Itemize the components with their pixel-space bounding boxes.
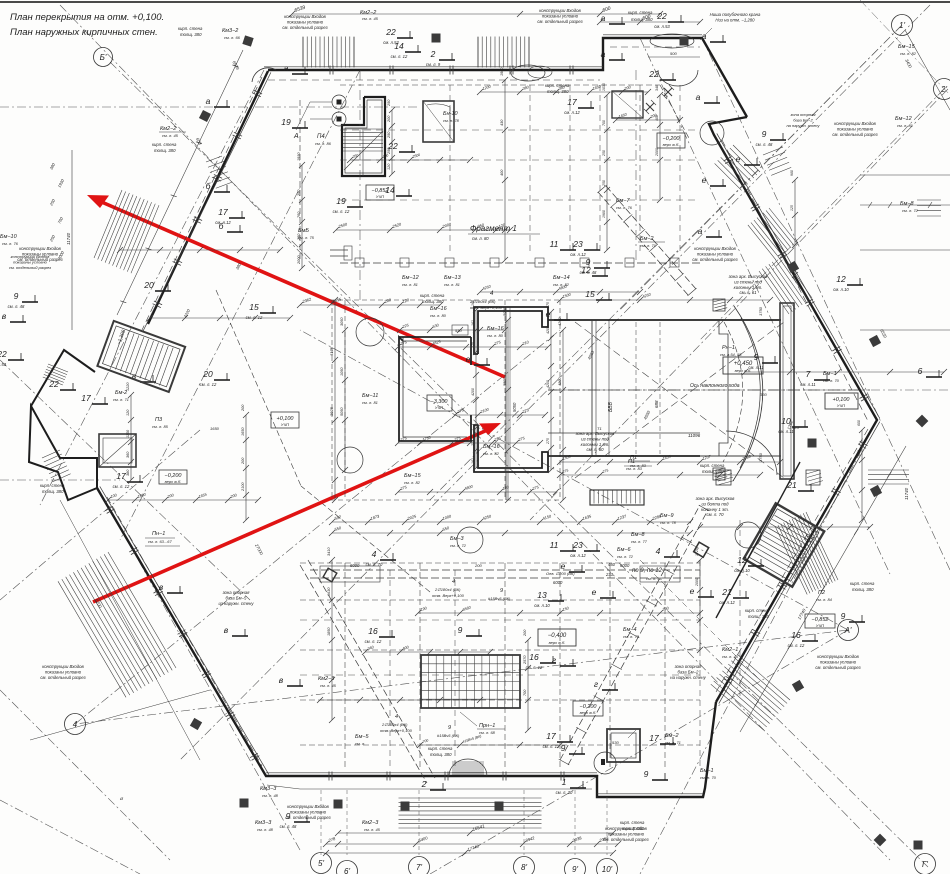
svg-text:233: 233 [605, 572, 614, 577]
svg-text:1750: 1750 [758, 452, 763, 462]
svg-text:17: 17 [567, 97, 577, 107]
svg-text:Бм−2: Бм−2 [665, 733, 679, 739]
svg-text:2000: 2000 [297, 255, 301, 265]
svg-text:Км2−2: Км2−2 [160, 126, 176, 132]
svg-text:е: е [466, 354, 471, 364]
svg-text:16: 16 [529, 652, 539, 662]
svg-text:6000: 6000 [350, 563, 360, 568]
svg-text:160: 160 [471, 300, 475, 306]
svg-text:22: 22 [48, 379, 59, 389]
svg-text:е: е [702, 175, 707, 185]
svg-text:кирп. стена: кирп. стена [700, 463, 725, 468]
svg-text:Г': Г' [922, 860, 928, 869]
svg-text:е: е [592, 587, 597, 597]
svg-text:9': 9' [572, 865, 578, 874]
svg-text:360: 360 [126, 451, 130, 458]
svg-text:630: 630 [857, 450, 861, 456]
svg-text:см. л. 30: см. л. 30 [556, 790, 573, 795]
svg-text:20: 20 [202, 369, 213, 379]
svg-text:конструкции Входов: конструкции Входов [694, 246, 736, 251]
svg-text:база Бм−2: база Бм−2 [678, 669, 699, 674]
svg-text:А': А' [844, 626, 852, 635]
svg-text:см. л. 77: см. л. 77 [631, 539, 648, 544]
svg-text:е: е [546, 309, 551, 319]
svg-text:6000: 6000 [553, 580, 563, 585]
svg-text:показаны условно: показаны условно [697, 251, 734, 256]
svg-text:в: в [279, 675, 284, 685]
svg-text:17: 17 [81, 393, 91, 403]
svg-text:3050: 3050 [340, 317, 344, 326]
svg-text:см. л. 72: см. л. 72 [902, 208, 919, 213]
svg-text:колонны 1 эт.: колонны 1 эт. [734, 285, 763, 290]
svg-text:Бм−10: Бм−10 [0, 234, 18, 240]
svg-text:275: 275 [546, 302, 550, 309]
svg-text:см. л. 48: см. л. 48 [8, 304, 25, 309]
svg-text:см. л. 12: см. л. 12 [333, 209, 350, 214]
svg-text:см. л. 48: см. л. 48 [580, 270, 597, 275]
svg-text:6175: 6175 [329, 346, 334, 356]
svg-text:1220: 1220 [126, 382, 130, 391]
svg-text:см. л. 48: см. л. 48 [262, 793, 279, 798]
svg-text:кирп. стена: кирп. стена [428, 746, 453, 751]
svg-text:кирп. стена: кирп. стена [40, 483, 65, 488]
svg-text:УЧП: УЧП [435, 405, 443, 410]
svg-text:см. отдельный разрез: см. отдельный разрез [282, 25, 327, 30]
svg-text:125: 125 [790, 205, 794, 211]
svg-text:9: 9 [500, 588, 503, 594]
svg-text:7': 7' [416, 863, 422, 872]
svg-text:Бм−16: Бм−16 [487, 326, 505, 332]
svg-text:Бн-10: Бн-10 [443, 111, 458, 117]
svg-text:л.53: л.53 [0, 362, 7, 367]
svg-text:см. л. 70: см. л. 70 [700, 775, 717, 780]
svg-text:см. л. 45: см. л. 45 [162, 133, 179, 138]
svg-text:а: а [284, 63, 289, 73]
svg-text:15: 15 [585, 289, 595, 299]
svg-text:кирп. стена: кирп. стена [152, 142, 177, 147]
svg-text:250: 250 [387, 131, 391, 139]
svg-text:кирп. стена: кирп. стена [850, 581, 875, 586]
svg-text:1030: 1030 [602, 83, 606, 91]
svg-text:2570: 2570 [523, 655, 527, 665]
svg-text:см. л.12: см. л.12 [564, 110, 580, 115]
svg-text:9: 9 [561, 743, 566, 753]
svg-text:см. л. 48: см. л. 48 [646, 576, 663, 581]
svg-text:см. л. 45: см. л. 45 [320, 683, 337, 688]
svg-text:План наружных кирпичных сте: План наружных кирпичных стен. [10, 27, 158, 38]
svg-text:3925: 3925 [329, 406, 334, 416]
svg-text:г: г [552, 655, 556, 665]
svg-text:см. отдельный разрез: см. отдельный разрез [832, 132, 877, 137]
svg-text:из стены под: из стены под [581, 436, 609, 441]
svg-text:16: 16 [368, 626, 378, 636]
svg-text:П4: П4 [317, 134, 325, 140]
svg-text:Бм−15: Бм−15 [898, 44, 916, 50]
svg-text:кирп. стена: кирп. стена [620, 820, 645, 825]
svg-text:10': 10' [602, 865, 613, 874]
svg-text:Бм−1: Бм−1 [700, 768, 714, 774]
svg-text:688: 688 [654, 400, 659, 408]
svg-text:#15Вч5 (ВК): #15Вч5 (ВК) [437, 733, 460, 738]
svg-text:8': 8' [521, 863, 527, 872]
svg-text:Низ на отм. −1,280: Низ на отм. −1,280 [715, 17, 755, 22]
svg-text:показаны условно: показаны условно [542, 13, 579, 18]
svg-text:г: г [594, 679, 598, 689]
svg-text:530: 530 [455, 328, 462, 333]
svg-text:показаны условно: показаны условно [837, 126, 874, 131]
svg-text:см. л. 82: см. л. 82 [404, 480, 421, 485]
svg-text:толщ. 380: толщ. 380 [748, 614, 770, 619]
svg-text:План перекрытия на отм. +0: План перекрытия на отм. +0,100. [10, 12, 164, 23]
svg-text:см. л. 80: см. л. 80 [472, 236, 489, 241]
svg-text:1650: 1650 [210, 426, 220, 431]
svg-text:Км2−1: Км2−1 [722, 647, 738, 653]
svg-text:15: 15 [249, 302, 259, 312]
svg-text:зона арх. Выпусков: зона арх. Выпусков [695, 496, 736, 501]
svg-text:зона опорная: зона опорная [222, 590, 251, 595]
svg-text:200: 200 [241, 404, 245, 412]
svg-text:кирп. стена: кирп. стена [420, 293, 445, 298]
svg-text:19: 19 [281, 117, 291, 127]
svg-text:кирп. стена: кирп. стена [745, 608, 769, 613]
svg-text:конструкции Входов: конструкции Входов [817, 654, 859, 659]
svg-text:см. л.11: см. л.11 [778, 429, 793, 434]
svg-text:9: 9 [458, 625, 463, 635]
svg-text:275: 275 [471, 440, 475, 447]
svg-text:см. л. 61: см. л. 61 [739, 290, 757, 295]
svg-text:см. л. 70: см. л. 70 [706, 512, 724, 517]
svg-text:из стены под: из стены под [734, 279, 762, 284]
svg-text:см. л. 71: см. л. 71 [640, 243, 656, 248]
svg-text:17: 17 [546, 731, 556, 741]
svg-text:4: 4 [452, 579, 455, 585]
svg-text:2100: 2100 [241, 482, 245, 492]
svg-text:толщ. 380: толщ. 380 [180, 32, 202, 37]
svg-text:см. л. 48: см. л. 48 [257, 827, 274, 832]
svg-text:см. л. 76: см. л. 76 [2, 241, 19, 246]
svg-text:см. отдельный разрез: см. отдельный разрез [40, 675, 85, 680]
svg-text:120: 120 [126, 409, 130, 416]
svg-text:Пн−1: Пн−1 [152, 531, 165, 537]
svg-text:см. л. 12: см. л. 12 [365, 639, 382, 644]
svg-text:БмБ: БмБ [298, 228, 309, 234]
svg-text:УЧП: УЧП [376, 194, 384, 199]
svg-text:700: 700 [523, 689, 527, 696]
svg-text:19: 19 [336, 196, 346, 206]
svg-text:Бм−16: Бм−16 [483, 444, 501, 450]
svg-text:см. л. 9: см. л. 9 [426, 62, 441, 67]
svg-text:20: 20 [143, 280, 154, 290]
svg-text:2: 2 [421, 779, 427, 789]
svg-text:200: 200 [241, 457, 245, 465]
svg-text:см. л.10: см. л.10 [534, 603, 550, 608]
svg-text:6000: 6000 [620, 563, 630, 568]
svg-text:530: 530 [612, 740, 619, 745]
svg-text:толщ. 380: толщ. 380 [852, 587, 874, 592]
svg-text:5050: 5050 [512, 402, 517, 412]
svg-text:1980: 1980 [500, 67, 504, 76]
svg-text:400: 400 [655, 115, 659, 121]
svg-text:см. л. 78: см. л. 78 [660, 520, 677, 525]
svg-text:конструкции Входов: конструкции Входов [834, 121, 876, 126]
svg-text:Бм−15: Бм−15 [404, 473, 422, 479]
svg-text:колонну 1 эт.: колонну 1 эт. [701, 507, 729, 512]
svg-text:10: 10 [781, 416, 791, 426]
svg-text:см. л. 45: см. л. 45 [722, 654, 739, 659]
svg-text:12: 12 [836, 274, 846, 284]
svg-text:162: 162 [471, 320, 475, 326]
svg-text:5050: 5050 [502, 306, 507, 316]
svg-text:е: е [561, 561, 566, 571]
svg-text:1930: 1930 [297, 152, 301, 161]
svg-text:4: 4 [395, 714, 398, 720]
svg-text:700: 700 [602, 120, 606, 126]
svg-text:430: 430 [500, 119, 504, 126]
svg-text:толщ. 380: толщ. 380 [42, 489, 64, 494]
svg-text:250: 250 [387, 99, 391, 107]
svg-text:23: 23 [572, 540, 583, 550]
svg-text:11: 11 [550, 239, 559, 249]
svg-text:см. л. 81: см. л. 81 [897, 123, 913, 128]
svg-text:в: в [224, 625, 229, 635]
svg-text:см. отдельный разрез: см. отдельный разрез [815, 665, 860, 670]
svg-text:см. л. 45: см. л. 45 [364, 827, 381, 832]
svg-text:см. л. 68: см. л. 68 [479, 730, 496, 735]
svg-text:4: 4 [372, 549, 377, 559]
svg-text:верх ж.б.: верх ж.б. [165, 479, 182, 484]
svg-text:380: 380 [126, 469, 130, 476]
svg-text:см. л. 82: см. л. 82 [900, 51, 917, 56]
svg-text:9: 9 [644, 769, 649, 779]
svg-text:а: а [206, 96, 211, 106]
svg-text:показаны условно: показаны условно [820, 659, 857, 664]
svg-text:толщ. 380: толщ. 380 [430, 752, 452, 757]
svg-text:Рн−1: Рн−1 [722, 345, 735, 351]
svg-text:см. л. 71: см. л. 71 [113, 397, 129, 402]
svg-text:верх ж.б.: верх ж.б. [549, 640, 566, 645]
svg-text:275: 275 [546, 438, 550, 445]
svg-text:9: 9 [586, 257, 591, 267]
svg-text:2080: 2080 [695, 578, 699, 587]
svg-text:зона опорная: зона опорная [789, 112, 816, 117]
svg-text:Бм−6: Бм−6 [617, 547, 632, 553]
svg-text:см. л.54, 55: см. л.54, 55 [720, 352, 742, 357]
svg-text:из наружн. стену: из наружн. стену [218, 601, 254, 606]
svg-text:см. л.53: см. л.53 [383, 40, 399, 45]
svg-text:1850: 1850 [327, 627, 331, 636]
svg-text:см. л.12: см. л.12 [570, 553, 586, 558]
svg-text:УЧП: УЧП [837, 403, 845, 408]
svg-text:см. л. 60: см. л. 60 [586, 447, 604, 452]
svg-text:см. л.11: см. л.11 [748, 365, 763, 370]
svg-text:9: 9 [14, 291, 19, 301]
svg-text:конструкции Входов: конструкции Входов [19, 246, 61, 251]
svg-text:см. л. 86: см. л. 86 [315, 141, 332, 146]
svg-text:11740: 11740 [904, 487, 909, 500]
svg-text:кирп. стена: кирп. стена [178, 26, 203, 31]
svg-text:9: 9 [448, 725, 451, 731]
svg-text:е: е [690, 586, 695, 596]
svg-text:250: 250 [602, 150, 606, 157]
svg-text:база Бм−2: база Бм−2 [793, 117, 813, 122]
svg-text:Км3−3: Км3−3 [260, 786, 277, 792]
svg-text:2: 2 [430, 49, 436, 59]
svg-text:конструкции Входов: конструкции Входов [287, 804, 329, 809]
svg-text:Бм−11: Бм−11 [362, 393, 378, 399]
svg-text:7: 7 [806, 369, 811, 379]
svg-text:Км2−3: Км2−3 [362, 820, 379, 826]
svg-text:3410: 3410 [327, 547, 331, 556]
svg-text:е: е [736, 154, 741, 164]
svg-text:см. отдельный разрез: см. отдельный разрез [603, 837, 648, 842]
svg-text:показаны условно: показаны условно [608, 831, 645, 836]
svg-text:200: 200 [523, 629, 527, 637]
svg-text:см. л.: см. л. [355, 741, 365, 746]
svg-text:см. л.53: см. л.53 [654, 24, 670, 29]
svg-text:6: 6 [918, 366, 923, 376]
svg-text:см. л. 81: см. л. 81 [402, 282, 418, 287]
svg-text:толщ. 380: толщ. 380 [622, 826, 644, 831]
svg-text:а: а [601, 49, 606, 59]
svg-text:на наружн. стену: на наружн. стену [786, 123, 820, 128]
svg-text:200: 200 [474, 563, 482, 568]
svg-text:верх ж.б.: верх ж.б. [580, 710, 597, 715]
svg-text:см. л. 84: см. л. 84 [816, 597, 833, 602]
svg-text:250: 250 [602, 180, 606, 187]
svg-text:показаны условно: показаны условно [13, 259, 48, 264]
svg-text:показаны условно: показаны условно [45, 669, 82, 674]
svg-text:17: 17 [116, 471, 126, 481]
svg-text:9: 9 [754, 352, 759, 362]
svg-text:из болта под: из болта под [702, 501, 730, 506]
svg-text:конструкции Входов: конструкции Входов [42, 664, 84, 669]
svg-text:1': 1' [899, 21, 905, 30]
svg-text:−0,400: −0,400 [548, 633, 567, 639]
svg-text:9: 9 [762, 129, 767, 139]
svg-text:Бм−12: Бм−12 [895, 116, 912, 122]
svg-text:П3: П3 [155, 417, 163, 423]
svg-text:22: 22 [0, 349, 7, 359]
svg-text:2080: 2080 [655, 148, 659, 157]
svg-text:см. л. 12: см. л. 12 [113, 484, 130, 489]
svg-text:Прн−1: Прн−1 [479, 723, 495, 729]
svg-text:см. л. 80: см. л. 80 [487, 333, 504, 338]
svg-text:показаны условно: показаны условно [287, 19, 324, 24]
svg-text:400: 400 [500, 169, 504, 176]
svg-text:в: в [2, 311, 7, 321]
svg-text:Бм−4: Бм−4 [623, 627, 637, 633]
svg-text:см. л. 45: см. л. 45 [362, 16, 379, 21]
svg-text:Ниша полубочного крана: Ниша полубочного крана [710, 12, 761, 17]
svg-text:Бм−2: Бм−2 [640, 236, 654, 242]
svg-text:760: 760 [297, 211, 301, 218]
svg-text:Ось наклонного хода: Ось наклонного хода [690, 383, 740, 389]
svg-text:УЧП: УЧП [281, 422, 289, 427]
svg-text:см. л. 81: см. л. 81 [362, 400, 378, 405]
svg-text:500: 500 [670, 51, 677, 56]
svg-text:П1: П1 [630, 455, 637, 461]
svg-text:Км3−3: Км3−3 [255, 820, 272, 826]
svg-text:конструкции Входов: конструкции Входов [284, 14, 326, 19]
svg-text:конструкции Входов: конструкции Входов [11, 254, 50, 259]
svg-text:1980: 1980 [602, 210, 606, 218]
svg-text:1750: 1750 [758, 306, 763, 316]
svg-text:Км3−2: Км3−2 [222, 28, 238, 34]
svg-text:11096: 11096 [688, 433, 701, 438]
svg-text:4206: 4206 [546, 326, 550, 334]
svg-text:см. л. 66: см. л. 66 [224, 35, 241, 40]
svg-text:см. л. 12: см. л. 12 [200, 382, 217, 387]
svg-text:верх ж.б.: верх ж.б. [663, 142, 680, 147]
svg-text:11: 11 [550, 540, 559, 550]
svg-text:17: 17 [649, 733, 659, 743]
svg-text:см. л. 63...67: см. л. 63...67 [148, 539, 172, 544]
svg-text:см. л.10: см. л.10 [833, 287, 849, 292]
svg-text:см. л. 12: см. л. 12 [391, 54, 408, 59]
svg-text:Бм−13: Бм−13 [444, 275, 462, 281]
svg-text:см. л. 80: см. л. 80 [430, 313, 447, 318]
svg-text:УЧП: УЧП [816, 623, 824, 628]
svg-text:см. отдельный разрез: см. отдельный разрез [285, 815, 330, 820]
svg-text:см. л. 76: см. л. 76 [616, 205, 633, 210]
svg-text:1050: 1050 [340, 367, 344, 376]
svg-text:1720: 1720 [695, 548, 699, 556]
svg-text:330: 330 [760, 392, 767, 397]
svg-text:см. отдельный разрез: см. отдельный разрез [692, 257, 737, 262]
svg-text:600: 600 [857, 420, 861, 426]
svg-text:4200: 4200 [546, 380, 550, 388]
svg-text:отм. Верх+0,100: отм. Верх+0,100 [432, 593, 465, 598]
svg-text:4200: 4200 [558, 377, 562, 386]
svg-text:980: 980 [790, 170, 794, 176]
svg-text:см. л. 12: см. л. 12 [246, 315, 263, 320]
svg-text:см. л.12: см. л.12 [719, 600, 735, 605]
svg-text:конструкции Входов: конструкции Входов [539, 8, 581, 13]
svg-text:200: 200 [387, 115, 391, 123]
svg-text:Бм−9: Бм−9 [660, 513, 674, 519]
svg-text:162: 162 [471, 458, 475, 464]
svg-text:по 9, по 12: по 9, по 12 [632, 568, 663, 574]
svg-text:см. л. 83: см. л. 83 [630, 463, 647, 468]
svg-text:250: 250 [297, 189, 301, 197]
svg-text:6': 6' [344, 867, 350, 874]
svg-text:5500: 5500 [502, 376, 507, 386]
svg-text:толщ. 380: толщ. 380 [154, 148, 176, 153]
svg-text:1650: 1650 [241, 427, 245, 436]
svg-text:5': 5' [318, 859, 324, 868]
svg-text:120: 120 [387, 163, 391, 170]
svg-text:а: а [601, 13, 606, 23]
svg-text:11740: 11740 [66, 232, 71, 245]
svg-text:см. л. 78: см. л. 78 [443, 118, 460, 123]
svg-text:Бм−5: Бм−5 [355, 734, 370, 740]
svg-text:а: а [696, 92, 701, 102]
svg-text:см. л. 48: см. л. 48 [756, 142, 773, 147]
svg-text:БВВ: БВВ [608, 401, 614, 412]
svg-text:А: А [293, 133, 299, 140]
svg-text:Бм−3: Бм−3 [900, 201, 915, 207]
svg-text:в: в [159, 582, 164, 592]
svg-text:зона опорная: зона опорная [674, 664, 703, 669]
svg-text:толщ. 380: толщ. 380 [422, 299, 444, 304]
svg-text:14: 14 [385, 185, 395, 195]
svg-text:22: 22 [648, 69, 659, 79]
svg-text:1630: 1630 [327, 587, 331, 596]
svg-text:13: 13 [537, 590, 547, 600]
svg-text:см. л.12: см. л.12 [570, 252, 586, 257]
svg-text:250: 250 [297, 233, 301, 241]
svg-text:база Бм−5: база Бм−5 [226, 595, 247, 600]
